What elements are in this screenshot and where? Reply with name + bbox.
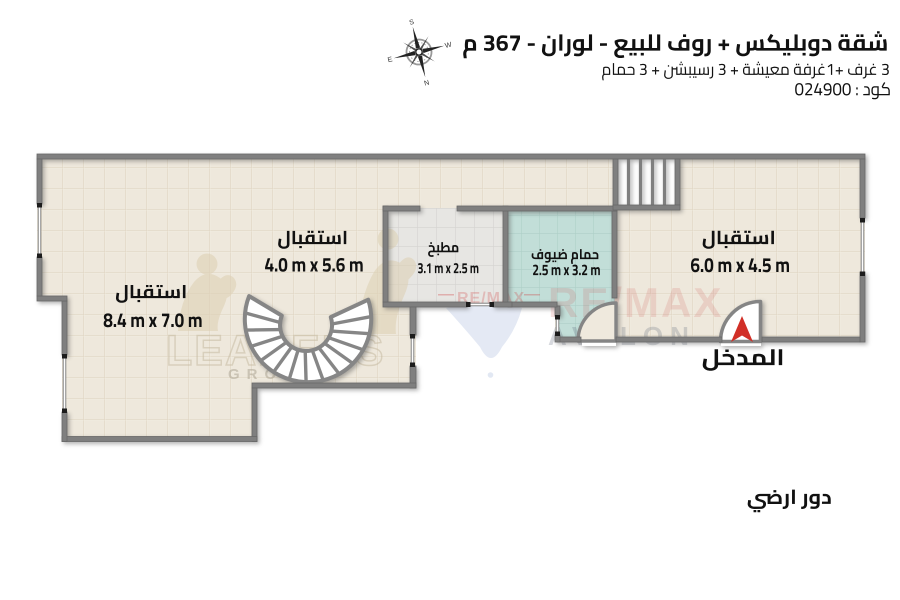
svg-text:N: N	[424, 80, 431, 88]
svg-text:W: W	[444, 41, 452, 49]
svg-text:E: E	[387, 56, 394, 64]
svg-text:S: S	[409, 19, 416, 27]
svg-text:RE/MAX: RE/MAX	[548, 279, 723, 326]
svg-text:AVALON: AVALON	[548, 321, 696, 351]
